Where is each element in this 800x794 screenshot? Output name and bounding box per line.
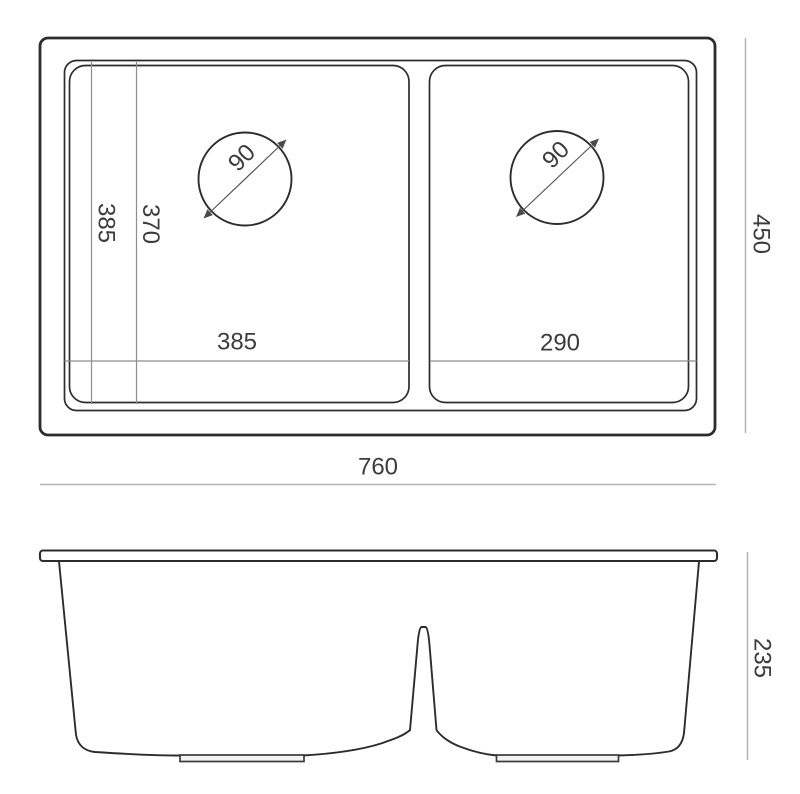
overall-height-label: 235 — [749, 638, 776, 678]
right-bowl-foot-pad — [497, 755, 619, 762]
top-view: 385 370 90 90 385 290 — [40, 38, 715, 435]
bowl-depth-outer-label: 385 — [93, 203, 120, 243]
overall-width-label: 760 — [358, 454, 398, 481]
front-view — [40, 551, 717, 762]
front-view-rim — [40, 551, 717, 562]
sink-technical-drawing: 385 370 90 90 385 290 760 450 235 — [0, 0, 800, 794]
left-bowl-foot-pad — [180, 755, 304, 762]
overall-depth-label: 450 — [748, 214, 775, 254]
drawing-svg: 385 370 90 90 385 290 760 450 235 — [0, 0, 800, 794]
left-bowl-width-label: 385 — [217, 329, 257, 356]
right-bowl-width-label: 290 — [540, 330, 580, 357]
bowl-depth-inner-label: 370 — [137, 204, 164, 244]
front-view-body-profile — [59, 562, 699, 756]
